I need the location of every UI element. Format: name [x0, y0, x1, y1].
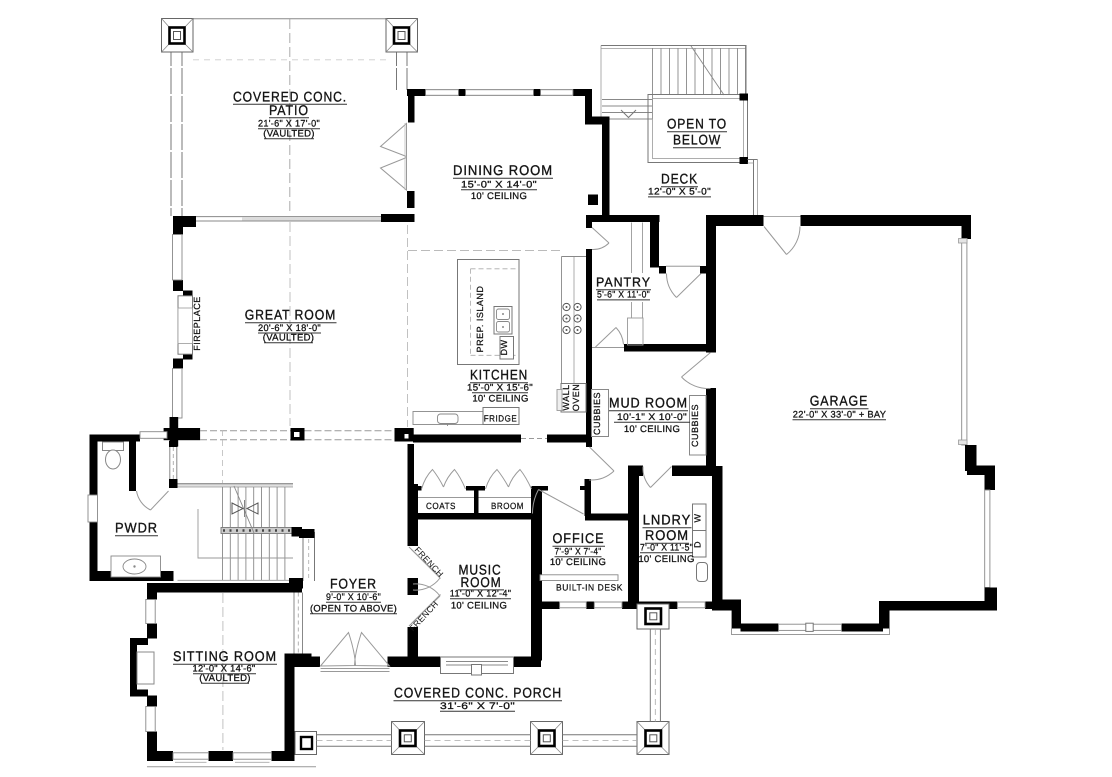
svg-text:FOYER: FOYER — [330, 576, 377, 592]
svg-text:WALL: WALL — [561, 384, 571, 410]
svg-text:FIREPLACE: FIREPLACE — [192, 296, 202, 351]
svg-text:(VAULTED): (VAULTED) — [199, 673, 250, 684]
svg-text:PANTRY: PANTRY — [596, 275, 651, 290]
svg-text:BROOM: BROOM — [491, 501, 524, 511]
svg-text:9'-0" X 10'-6": 9'-0" X 10'-6" — [326, 592, 381, 603]
svg-text:BUILT-IN DESK: BUILT-IN DESK — [556, 583, 623, 593]
svg-text:10'-1" X 10'-0": 10'-1" X 10'-0" — [617, 412, 687, 423]
svg-text:22'-0" X 33'-0" + BAY: 22'-0" X 33'-0" + BAY — [793, 410, 887, 421]
svg-text:DINING ROOM: DINING ROOM — [453, 162, 553, 178]
svg-text:10' CEILING: 10' CEILING — [624, 424, 680, 435]
svg-text:31'-6" X 7'-0": 31'-6" X 7'-0" — [440, 701, 515, 712]
svg-text:CUBBIES: CUBBIES — [690, 404, 700, 447]
svg-text:COATS: COATS — [426, 501, 456, 511]
svg-text:(OPEN TO ABOVE): (OPEN TO ABOVE) — [310, 604, 397, 615]
svg-text:10' CEILING: 10' CEILING — [472, 394, 528, 405]
svg-text:MUD ROOM: MUD ROOM — [609, 395, 688, 411]
svg-text:GREAT ROOM: GREAT ROOM — [245, 307, 337, 323]
svg-text:SITTING ROOM: SITTING ROOM — [173, 648, 277, 664]
svg-text:OPEN TO: OPEN TO — [667, 116, 727, 132]
svg-text:(VAULTED): (VAULTED) — [263, 129, 314, 140]
svg-text:LNDRY: LNDRY — [643, 512, 692, 528]
svg-text:DW: DW — [499, 340, 509, 356]
svg-text:COVERED CONC. PORCH: COVERED CONC. PORCH — [394, 685, 562, 701]
svg-text:GARAGE: GARAGE — [810, 393, 869, 409]
svg-text:7'-9" X 7'-4": 7'-9" X 7'-4" — [555, 547, 602, 558]
svg-text:PREP. ISLAND: PREP. ISLAND — [475, 286, 485, 353]
svg-text:BELOW: BELOW — [673, 132, 721, 148]
svg-text:15'-0" X 15'-6": 15'-0" X 15'-6" — [467, 383, 533, 394]
svg-text:PWDR: PWDR — [115, 520, 158, 536]
svg-text:10' CEILING: 10' CEILING — [471, 191, 527, 202]
svg-text:10' CEILING: 10' CEILING — [638, 554, 694, 565]
svg-text:10' CEILING: 10' CEILING — [451, 601, 507, 612]
svg-text:CUBBIES: CUBBIES — [592, 392, 602, 435]
svg-text:DECK: DECK — [661, 171, 698, 187]
svg-text:W: W — [693, 514, 703, 523]
svg-text:5'-6" X 11'-0": 5'-6" X 11'-0" — [597, 290, 650, 301]
svg-text:FRIDGE: FRIDGE — [484, 414, 518, 424]
svg-text:15'-0" X 14'-0": 15'-0" X 14'-0" — [461, 180, 537, 191]
svg-text:10' CEILING: 10' CEILING — [550, 557, 606, 568]
svg-text:(VAULTED): (VAULTED) — [263, 333, 314, 344]
svg-text:D: D — [693, 541, 703, 548]
svg-text:OFFICE: OFFICE — [553, 530, 605, 546]
svg-text:OVEN: OVEN — [571, 384, 581, 412]
svg-text:7'-0" X 11'-5": 7'-0" X 11'-5" — [640, 543, 693, 554]
svg-text:KITCHEN: KITCHEN — [470, 367, 528, 383]
svg-text:ROOM: ROOM — [645, 527, 689, 543]
svg-text:12'-0" X 5'-0": 12'-0" X 5'-0" — [648, 187, 711, 198]
